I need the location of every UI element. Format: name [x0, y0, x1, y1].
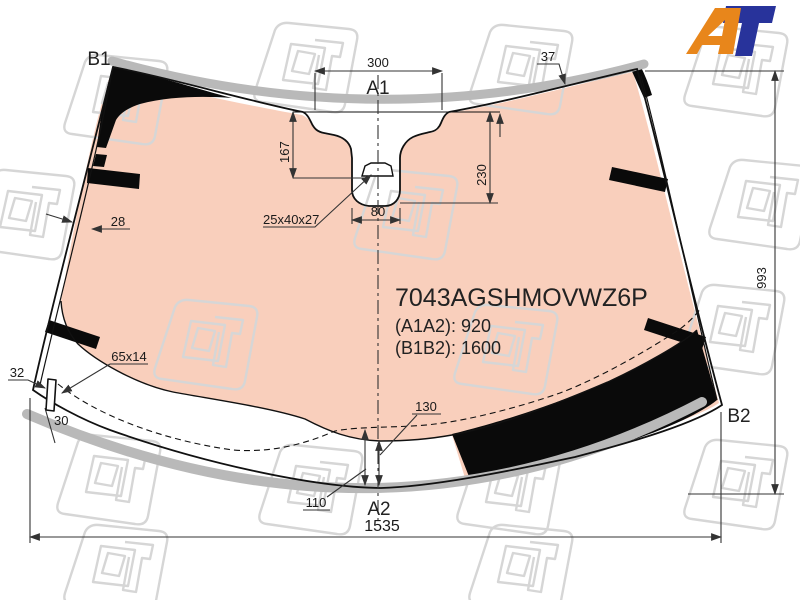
- dim-65x14-label: 65x14: [111, 349, 146, 364]
- at-logo: A T: [0, 0, 776, 56]
- dim-1535-label: 1535: [364, 518, 400, 535]
- logo-a-shape: [686, 8, 741, 54]
- watermark-logo: [0, 170, 74, 259]
- watermark-logo: [684, 440, 787, 529]
- point-b1-label: B1: [87, 49, 110, 70]
- dim-28-label: 28: [111, 214, 125, 229]
- dim-230-label: 230: [474, 164, 489, 186]
- dim-110-label: 110: [306, 495, 327, 510]
- dim-65x14-leader: [62, 364, 110, 393]
- dim-37-label: 37: [541, 49, 555, 64]
- part-number: 7043AGSHMOVWZ6P: [395, 284, 648, 312]
- windshield-technical-drawing: 300 A1 37 167 230 80 25x40x27 28 993 65x…: [0, 0, 800, 600]
- dim-993-label: 993: [754, 267, 769, 289]
- dim-80-label: 80: [371, 204, 385, 219]
- watermark-logo: [469, 525, 572, 600]
- point-a1-label: A1: [366, 78, 389, 99]
- point-a2-label: A2: [367, 499, 390, 520]
- dim-130-label: 130: [415, 399, 437, 414]
- dim-32-label: 32: [10, 365, 24, 380]
- part-a1a2-spec: (A1A2): 920: [395, 316, 491, 336]
- dim-30-label: 30: [54, 413, 68, 428]
- dim-167-label: 167: [277, 141, 292, 163]
- watermark-logo: [64, 525, 167, 600]
- dim-300-label: 300: [367, 55, 389, 70]
- mirror-button: [46, 379, 56, 411]
- bracket-size-label: 25x40x27: [263, 212, 319, 227]
- watermark-logo: [709, 160, 800, 249]
- part-b1b2-spec: (B1B2): 1600: [395, 338, 501, 358]
- windshield-diagram-page: 300 A1 37 167 230 80 25x40x27 28 993 65x…: [0, 0, 800, 600]
- point-b2-label: B2: [727, 406, 750, 427]
- dim-32-leader: [8, 380, 45, 388]
